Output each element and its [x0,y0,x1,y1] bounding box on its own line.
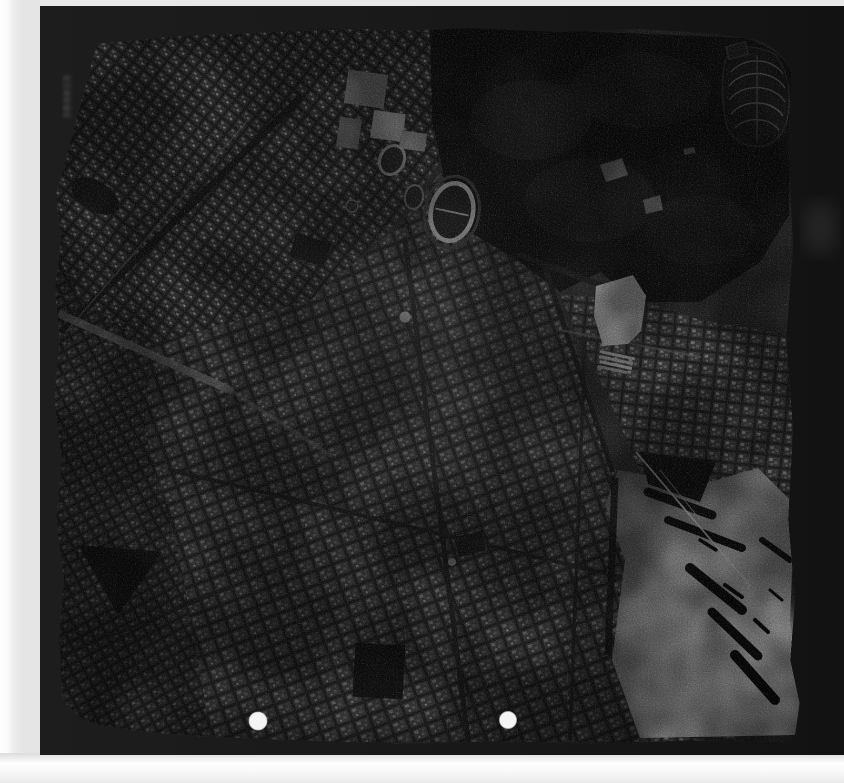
film-serial-number: 304015 [63,73,73,118]
vignette [40,6,844,755]
photo-emulsion [40,6,844,755]
left-stripe [22,0,40,783]
punch-hole-left [249,712,267,730]
aerial-photo-print: 304015 [0,0,844,783]
frame-smudge [803,201,837,255]
bottom-white-band [0,753,844,783]
punch-hole-right [500,712,517,729]
scanned-aerial-photo-page: 304015 [0,0,844,783]
left-white-band [0,0,22,783]
